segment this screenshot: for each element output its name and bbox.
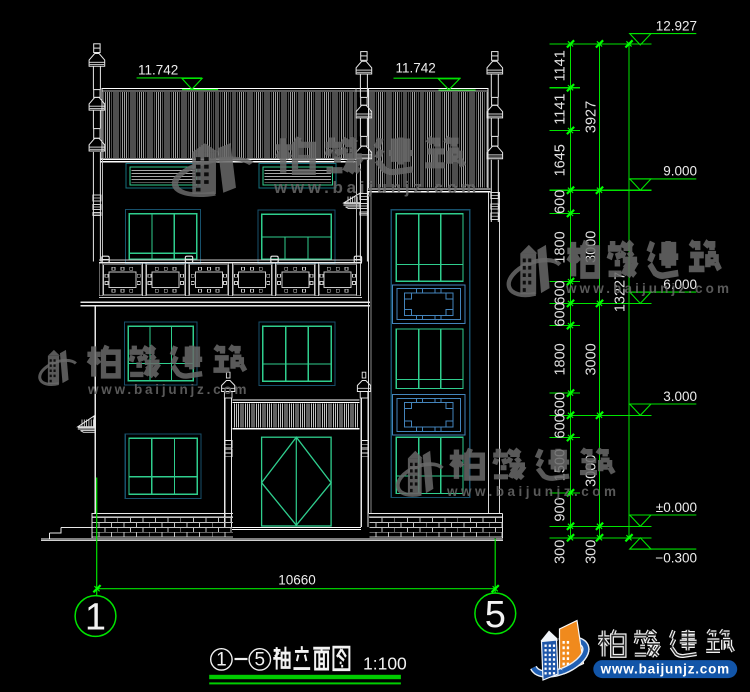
svg-text:11.742: 11.742 bbox=[396, 60, 436, 75]
svg-text:600: 600 bbox=[553, 414, 569, 438]
svg-text:1: 1 bbox=[85, 597, 106, 639]
svg-text:www.baijunjz.com: www.baijunjz.com bbox=[273, 178, 480, 197]
svg-text:600: 600 bbox=[553, 302, 569, 326]
svg-text:9.000: 9.000 bbox=[663, 164, 697, 179]
svg-text:1: 1 bbox=[216, 649, 227, 670]
svg-text:300: 300 bbox=[584, 540, 600, 564]
svg-text:www.baijunjz.com: www.baijunjz.com bbox=[565, 281, 732, 296]
svg-text:1141: 1141 bbox=[553, 50, 569, 81]
svg-text:10660: 10660 bbox=[278, 573, 316, 588]
svg-text:1:100: 1:100 bbox=[363, 654, 407, 674]
svg-text:3927: 3927 bbox=[584, 101, 600, 133]
svg-text:−0.300: −0.300 bbox=[655, 551, 697, 566]
svg-text:www.baijunjz.com: www.baijunjz.com bbox=[446, 484, 620, 499]
svg-text:12.927: 12.927 bbox=[656, 18, 697, 33]
svg-text:600: 600 bbox=[553, 392, 569, 416]
svg-text:5: 5 bbox=[485, 594, 506, 636]
svg-text:5: 5 bbox=[255, 649, 266, 670]
svg-text:1645: 1645 bbox=[553, 144, 569, 176]
svg-text:3.000: 3.000 bbox=[663, 389, 697, 404]
svg-text:300: 300 bbox=[553, 540, 569, 564]
svg-text:900: 900 bbox=[553, 497, 569, 521]
svg-text:www.baijunjz.com: www.baijunjz.com bbox=[87, 382, 249, 397]
svg-text:1800: 1800 bbox=[553, 231, 569, 263]
svg-text:1800: 1800 bbox=[553, 343, 569, 375]
svg-text:1141: 1141 bbox=[553, 94, 569, 125]
svg-text:3000: 3000 bbox=[584, 343, 600, 375]
svg-text:11.742: 11.742 bbox=[138, 63, 178, 78]
svg-text:±0.000: ±0.000 bbox=[656, 500, 697, 515]
svg-text:600: 600 bbox=[553, 190, 569, 214]
svg-text:www.baijunjz.com: www.baijunjz.com bbox=[600, 661, 730, 676]
